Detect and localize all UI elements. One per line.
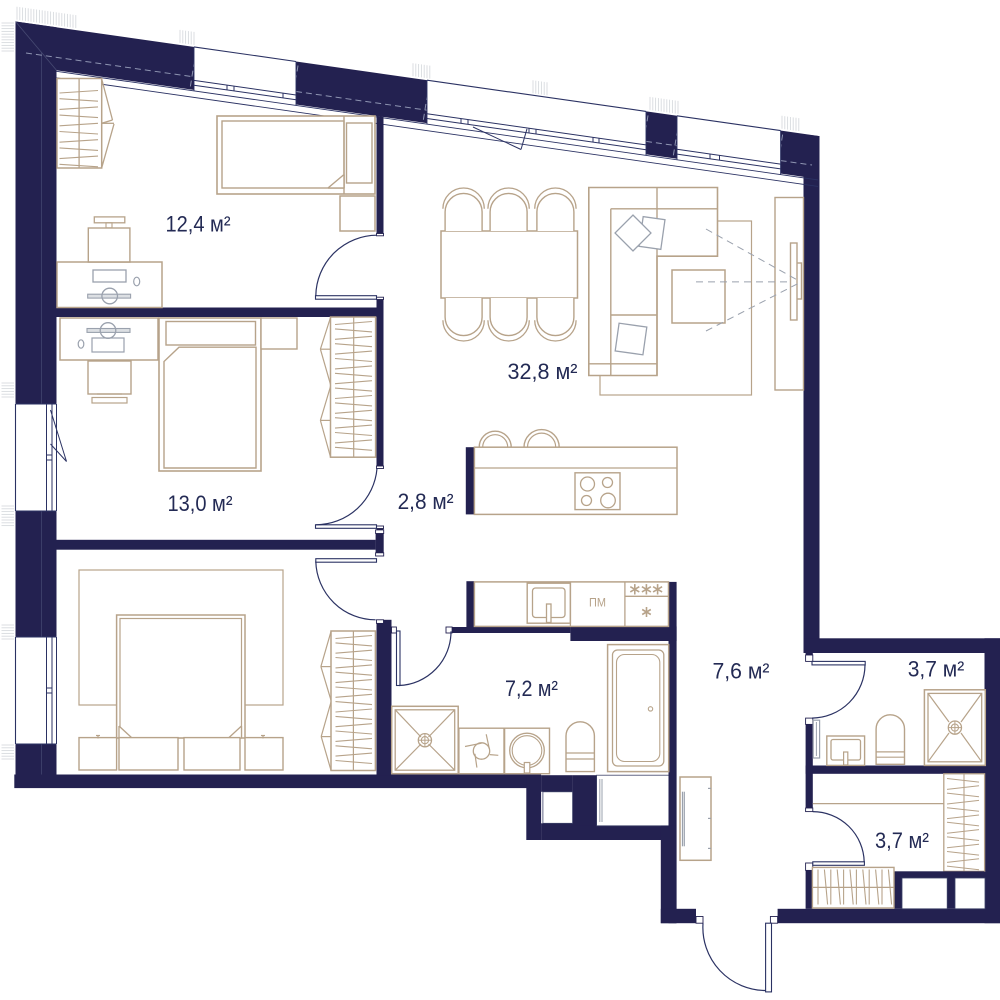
svg-text:ПМ: ПМ [589, 598, 606, 610]
svg-text:3,7 м²: 3,7 м² [875, 828, 929, 853]
svg-text:7,6 м²: 7,6 м² [713, 659, 770, 684]
svg-text:3,7 м²: 3,7 м² [908, 657, 965, 682]
svg-text:2,8 м²: 2,8 м² [398, 489, 454, 514]
svg-text:13,0 м²: 13,0 м² [168, 491, 233, 516]
svg-text:32,8 м²: 32,8 м² [508, 359, 578, 384]
svg-text:7,2 м²: 7,2 м² [505, 676, 558, 701]
svg-text:12,4 м²: 12,4 м² [166, 212, 231, 237]
